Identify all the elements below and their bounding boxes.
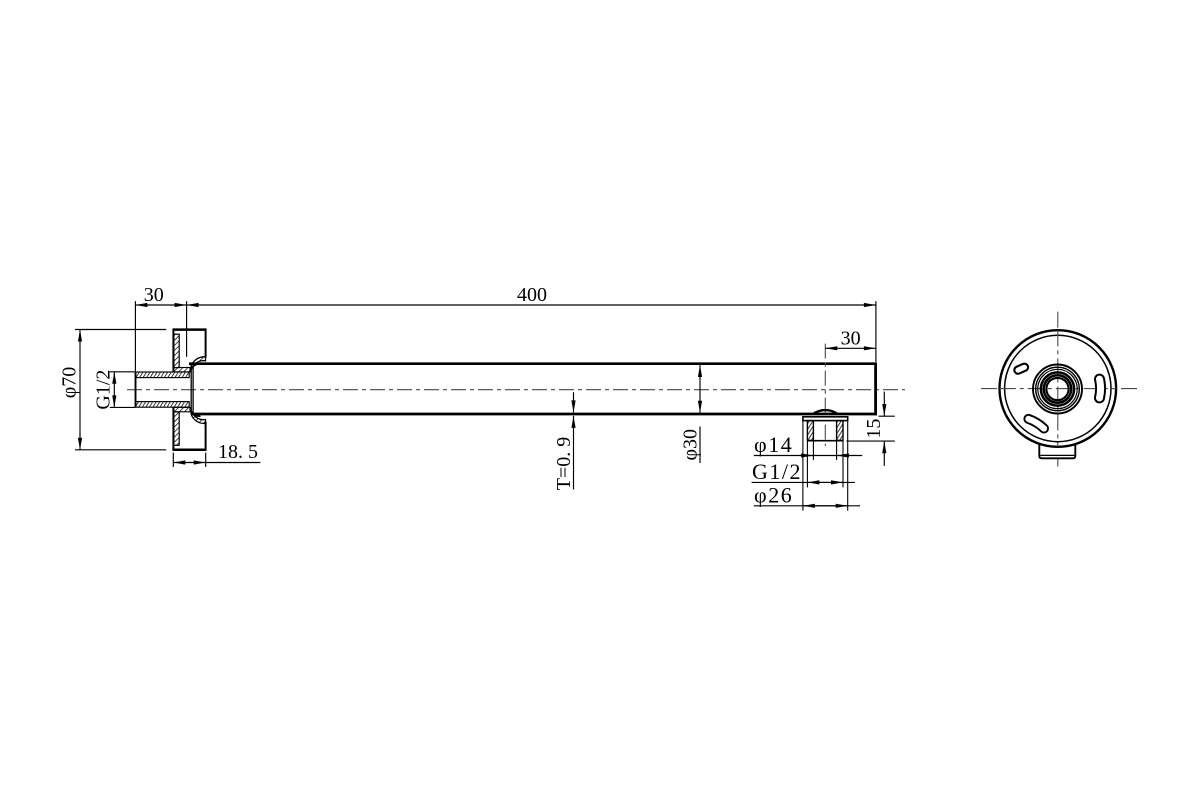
svg-text:G1/2: G1/2 — [752, 459, 802, 484]
svg-text:400: 400 — [517, 284, 547, 306]
svg-text:φ30: φ30 — [680, 429, 702, 461]
svg-text:15: 15 — [863, 419, 885, 439]
svg-text:18. 5: 18. 5 — [218, 441, 258, 463]
svg-text:30: 30 — [841, 328, 861, 350]
svg-text:T=0. 9: T=0. 9 — [553, 437, 575, 491]
svg-text:G1/2: G1/2 — [92, 370, 114, 410]
svg-text:φ14: φ14 — [754, 432, 793, 457]
svg-text:30: 30 — [144, 284, 164, 306]
svg-text:φ70: φ70 — [59, 367, 81, 399]
svg-text:φ26: φ26 — [754, 483, 793, 508]
